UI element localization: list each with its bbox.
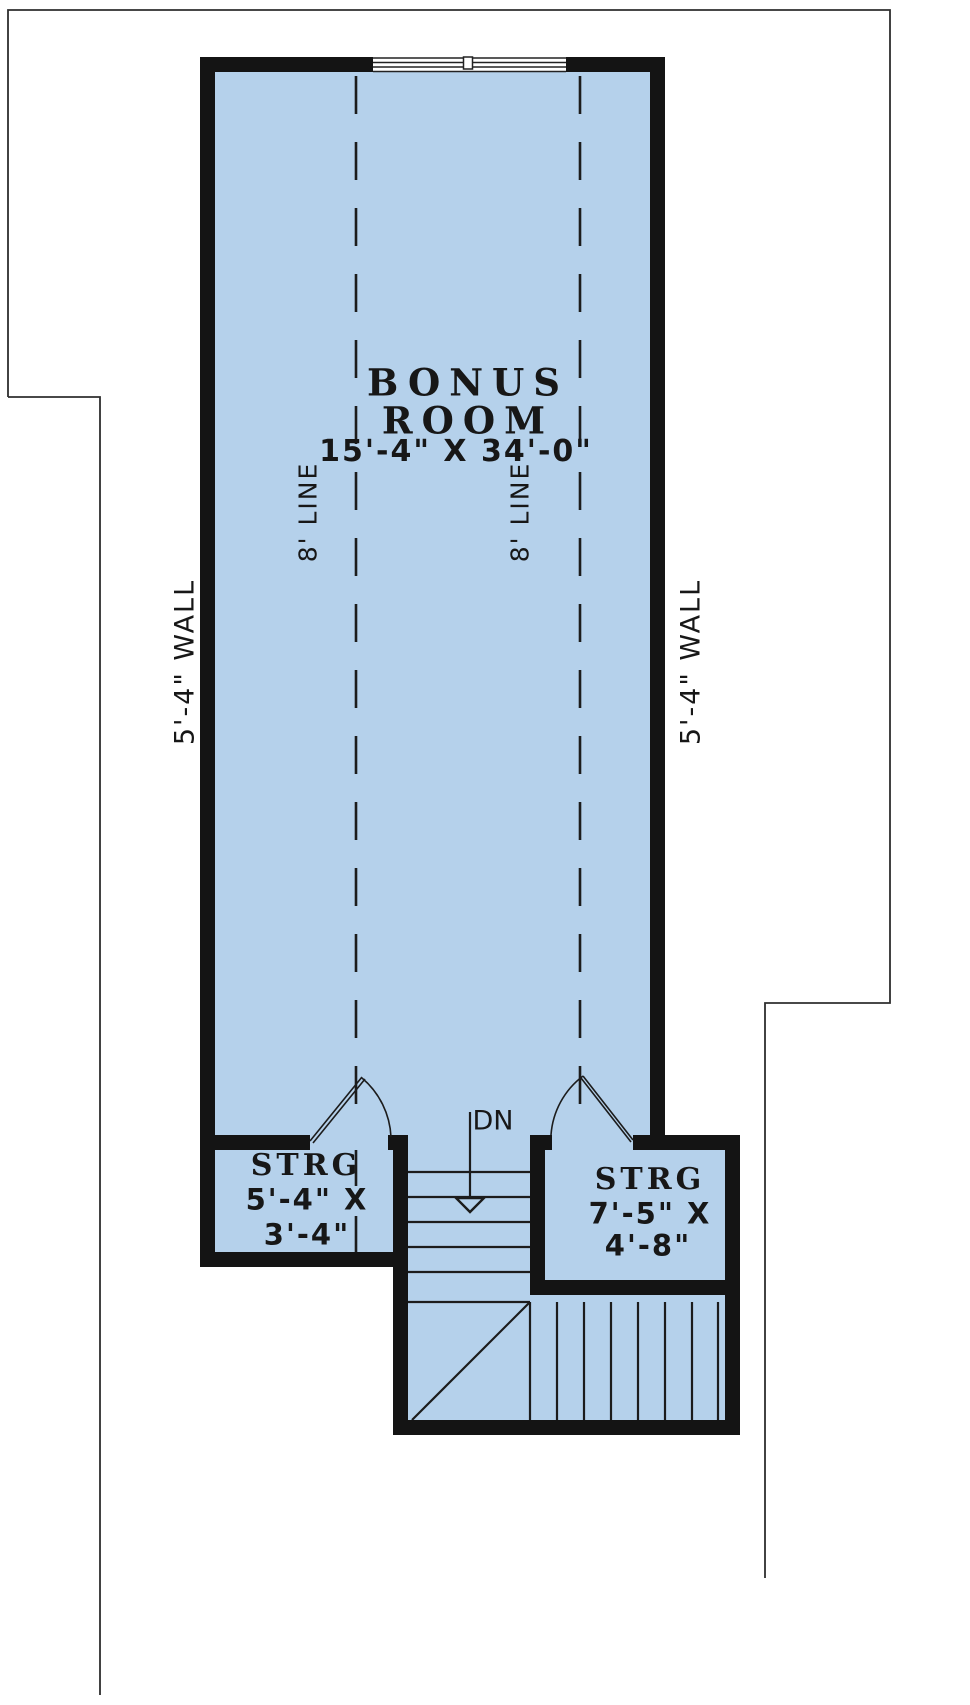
wall-height-label-right: 5'-4" WALL	[678, 579, 705, 745]
storage-right-dimensions-line1: 7'-5" X	[589, 1200, 712, 1229]
floor-plan-drawing	[0, 0, 970, 1705]
stairs-down-label: DN	[473, 1108, 514, 1135]
window-mullion	[464, 57, 473, 69]
ceiling-line-label-right: 8' LINE	[508, 462, 533, 563]
ceiling-line-label-left: 8' LINE	[296, 462, 321, 563]
bonus-room-dimensions: 15'-4" X 34'-0"	[319, 437, 593, 467]
floor-plan-page: BONUS ROOM 15'-4" X 34'-0" 8' LINE 8' LI…	[0, 0, 970, 1705]
bonus-room-label-line1: BONUS	[367, 365, 569, 402]
storage-right-dimensions-line2: 4'-8"	[605, 1232, 691, 1261]
storage-left-label: STRG	[251, 1151, 362, 1181]
window	[373, 57, 566, 72]
storage-right-label: STRG	[595, 1165, 706, 1195]
wall-height-label-left: 5'-4" WALL	[172, 579, 199, 745]
storage-left-dimensions-line1: 5'-4" X	[246, 1186, 369, 1215]
storage-left-dimensions-line2: 3'-4"	[264, 1221, 350, 1250]
